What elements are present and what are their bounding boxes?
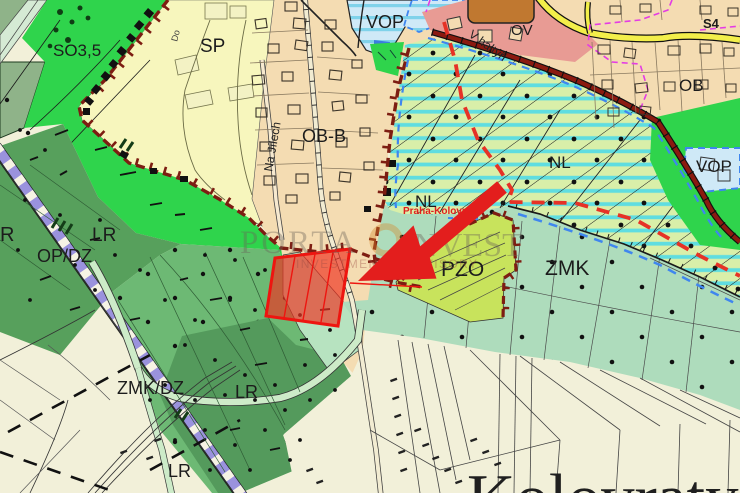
- svg-text:S4: S4: [703, 16, 720, 31]
- svg-text:LR: LR: [92, 225, 116, 246]
- svg-text:SP: SP: [200, 36, 225, 57]
- svg-text:Praha-Kolovr: Praha-Kolovr: [403, 206, 466, 217]
- svg-text:LR: LR: [168, 461, 191, 481]
- svg-text:R: R: [0, 224, 14, 246]
- svg-text:OB-B: OB-B: [302, 126, 346, 146]
- svg-text:OB: OB: [679, 76, 704, 95]
- svg-text:SO3,5: SO3,5: [53, 41, 101, 60]
- svg-text:OV: OV: [511, 22, 533, 39]
- svg-text:LR: LR: [235, 382, 258, 402]
- svg-text:PORTA: PORTA: [240, 225, 359, 261]
- svg-text:ZMK/DZ: ZMK/DZ: [117, 378, 184, 398]
- svg-text:NL: NL: [549, 153, 571, 172]
- svg-text:OP/DZ: OP/DZ: [37, 246, 92, 266]
- svg-text:VOP: VOP: [696, 157, 732, 176]
- svg-text:ZMK: ZMK: [545, 257, 589, 280]
- svg-text:VOP: VOP: [366, 12, 404, 32]
- svg-text:Kolovraty: Kolovraty: [467, 461, 739, 493]
